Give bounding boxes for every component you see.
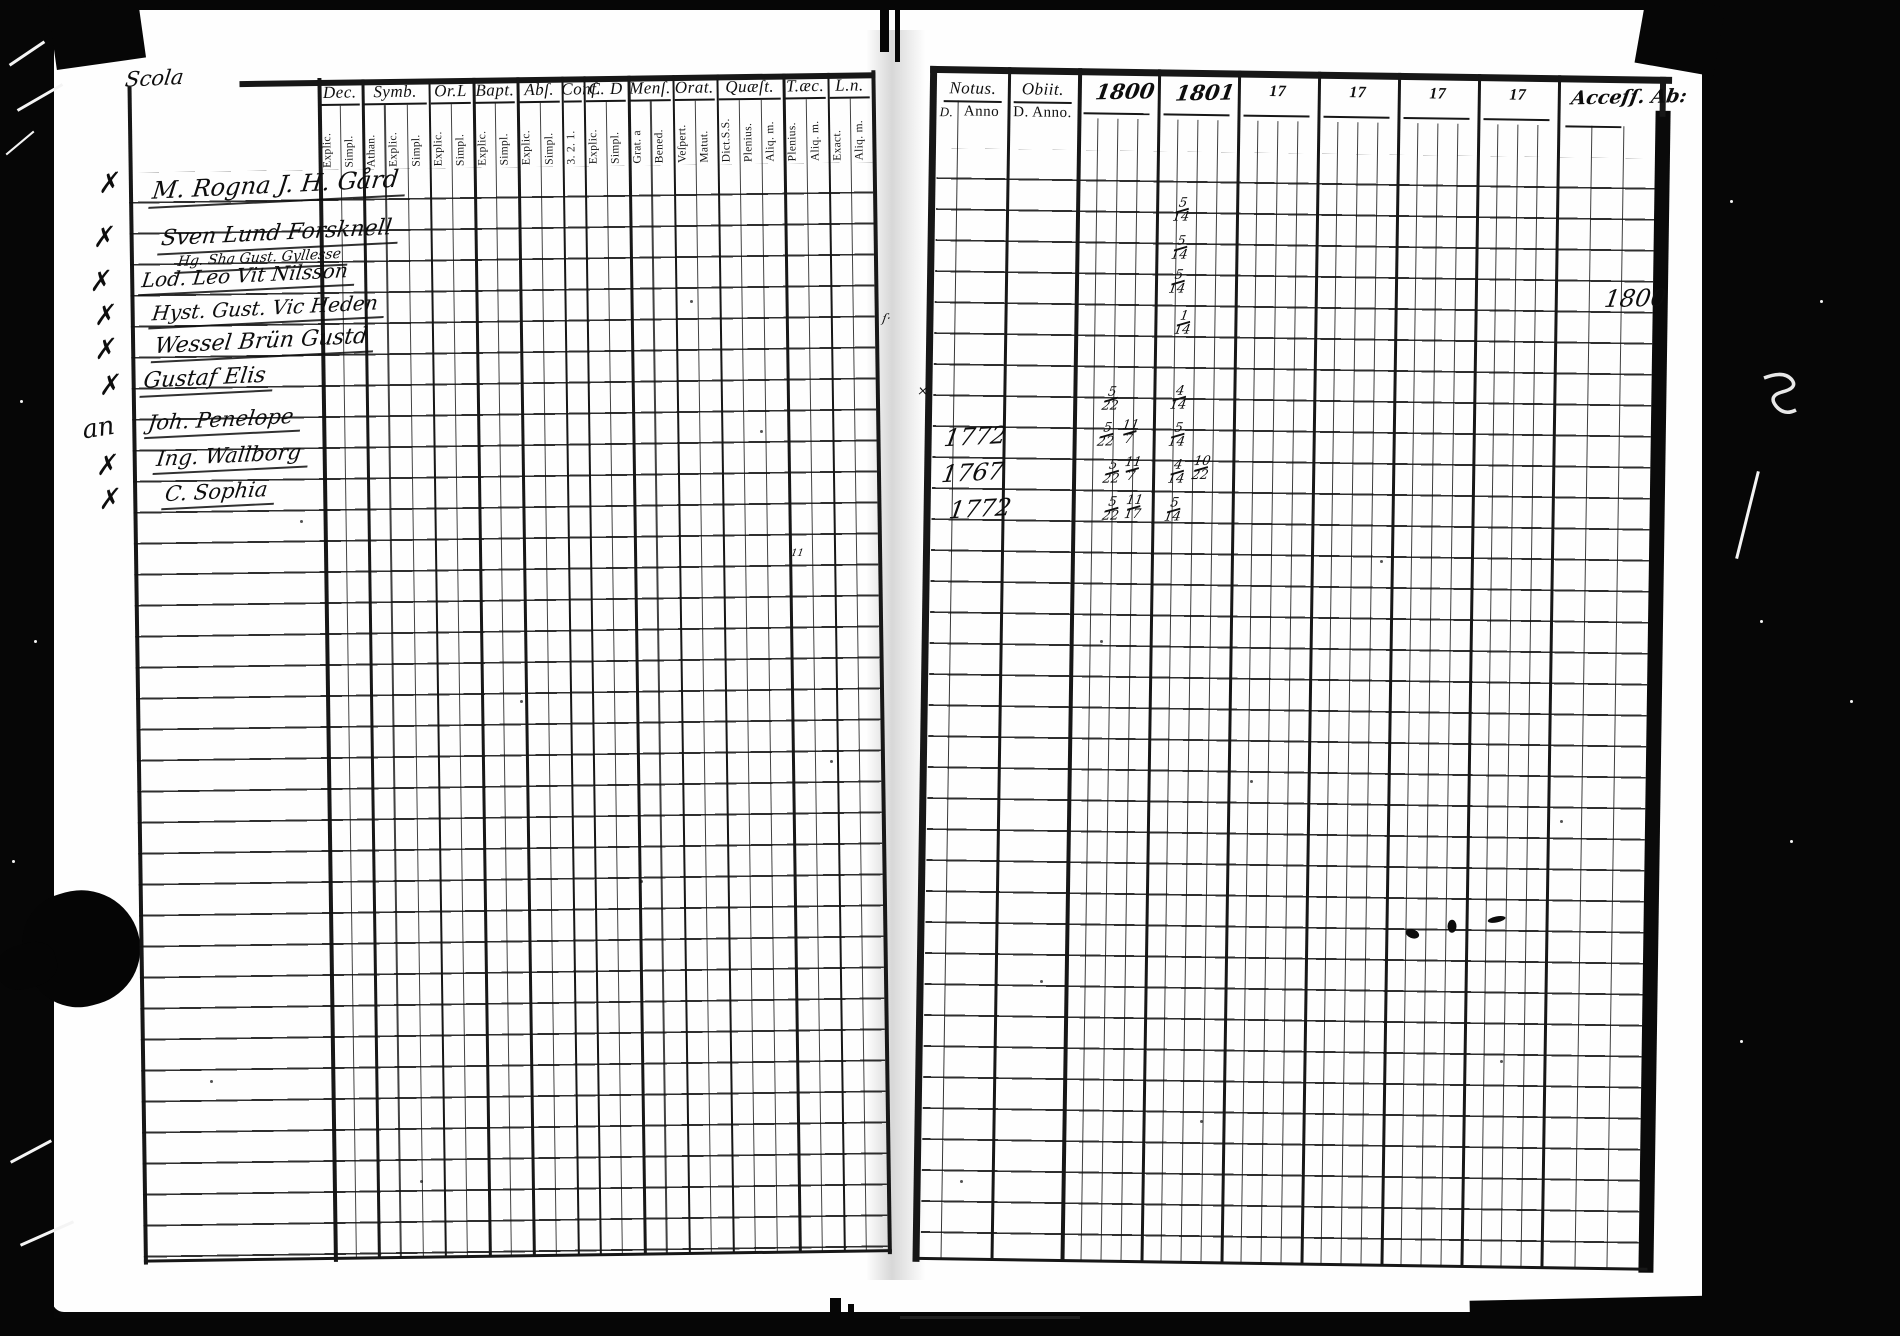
- header-underline: [1565, 125, 1621, 128]
- scan-speck: [1500, 1060, 1503, 1063]
- margin-speck: [1740, 1040, 1743, 1043]
- handwritten-anno-year: 1772: [947, 493, 1013, 524]
- date-fraction: 1117: [1123, 496, 1143, 521]
- scan-speck: [1380, 560, 1383, 563]
- scan-speck: [690, 300, 693, 303]
- handwritten-access-year: 1800: [1602, 284, 1668, 313]
- year-column-header: 1801: [1174, 79, 1237, 105]
- column-header-notus: Notus.: [938, 78, 1008, 99]
- margin-speck: [34, 640, 37, 643]
- header-underline: [1403, 117, 1469, 120]
- scan-speck: [760, 430, 763, 433]
- margin-speck: [1850, 700, 1853, 703]
- year-column-header: 17: [1478, 86, 1558, 105]
- margin-speck: [1820, 300, 1823, 303]
- column-header-obiit: Obiit.: [1008, 79, 1078, 100]
- scan-speck: [420, 1180, 423, 1183]
- scan-speck: [1250, 780, 1253, 783]
- header-underline: [1243, 115, 1309, 118]
- date-fraction: 1022: [1191, 457, 1211, 482]
- margin-speck: [12, 860, 15, 863]
- header-underline: [1483, 118, 1549, 121]
- header-underline: [1084, 112, 1150, 115]
- year-column-header: 17: [1238, 82, 1318, 101]
- header-underline: [1323, 116, 1389, 119]
- scan-speck: [1040, 980, 1043, 983]
- margin-speck: [1730, 200, 1733, 203]
- margin-speck: [1760, 620, 1763, 623]
- margin-speck: [20, 400, 23, 403]
- scan-speck: [520, 700, 523, 703]
- stray-pen-mark: 11: [790, 548, 805, 559]
- subheader-obiit-danno: D. Anno.: [1005, 104, 1079, 122]
- date-fraction: 522: [1102, 461, 1122, 486]
- handwritten-anno-year: 1772: [942, 421, 1008, 452]
- margin-speck: [1790, 840, 1793, 843]
- right-page: Notus. D. Anno Obiit. D. Anno. 180018011…: [0, 0, 1900, 1336]
- scan-speck: [1100, 640, 1103, 643]
- year-column-header: 17: [1398, 85, 1478, 104]
- scan-speck: [640, 880, 643, 883]
- handwritten-anno-year: 1767: [940, 457, 1006, 488]
- year-column-header: 1800: [1094, 78, 1157, 104]
- column-header-access: Acceſſ. Ab:: [1570, 85, 1689, 109]
- date-fraction: 522: [1101, 498, 1121, 523]
- date-fraction: 522: [1096, 423, 1116, 448]
- subheader-notus-d: D.: [935, 104, 957, 120]
- stray-pen-mark: ſ·: [881, 311, 892, 325]
- header-underline: [944, 100, 1002, 103]
- scan-speck: [1560, 820, 1563, 823]
- scan-speck: [960, 1180, 963, 1183]
- scan-speck: [830, 760, 833, 763]
- scan-speck: [300, 520, 303, 523]
- scan-speck: [1200, 1120, 1203, 1123]
- header-underline: [1164, 113, 1230, 116]
- date-fraction: 522: [1101, 388, 1121, 413]
- subheader-notus-anno: Anno: [955, 103, 1007, 121]
- scan-speck: [210, 1080, 213, 1083]
- scanned-register-spread: Scola Dec.Explic.Simpl.Symb.Athan.Explic…: [0, 0, 1900, 1336]
- year-column-header: 17: [1318, 84, 1398, 103]
